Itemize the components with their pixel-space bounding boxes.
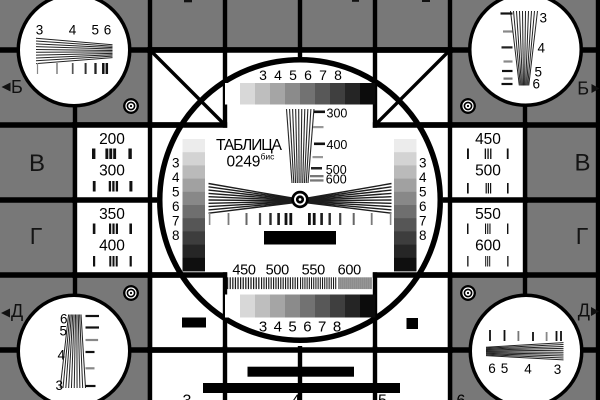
svg-text:4: 4 bbox=[524, 362, 532, 377]
svg-text:6: 6 bbox=[488, 361, 496, 376]
svg-text:3: 3 bbox=[554, 362, 562, 377]
svg-text:5: 5 bbox=[92, 23, 100, 38]
svg-text:4: 4 bbox=[419, 170, 427, 185]
svg-text:7: 7 bbox=[318, 319, 326, 336]
svg-text:400: 400 bbox=[99, 238, 125, 255]
svg-text:6: 6 bbox=[303, 319, 311, 336]
svg-text:600: 600 bbox=[326, 172, 347, 186]
svg-text:4: 4 bbox=[292, 393, 301, 400]
svg-text:6: 6 bbox=[533, 77, 541, 92]
svg-text:8: 8 bbox=[172, 228, 180, 243]
svg-text:5: 5 bbox=[172, 185, 180, 200]
svg-text:4: 4 bbox=[538, 41, 546, 56]
svg-text:3: 3 bbox=[172, 156, 180, 171]
svg-text:5: 5 bbox=[419, 185, 427, 200]
svg-text:3: 3 bbox=[259, 319, 267, 336]
svg-text:5: 5 bbox=[501, 361, 509, 376]
svg-text:5: 5 bbox=[59, 324, 67, 339]
svg-text:В: В bbox=[574, 150, 590, 177]
svg-text:400: 400 bbox=[327, 138, 348, 152]
svg-text:4: 4 bbox=[172, 170, 180, 185]
svg-text:600: 600 bbox=[338, 262, 362, 278]
svg-text:6: 6 bbox=[104, 23, 112, 38]
svg-text:7: 7 bbox=[319, 67, 327, 83]
svg-text:350: 350 bbox=[99, 206, 125, 223]
svg-text:В: В bbox=[29, 150, 45, 177]
svg-text:0249: 0249 bbox=[227, 154, 261, 171]
svg-text:6: 6 bbox=[457, 393, 466, 400]
svg-text:450: 450 bbox=[232, 262, 256, 278]
svg-text:3: 3 bbox=[540, 11, 548, 26]
svg-text:Г: Г bbox=[576, 223, 589, 249]
svg-text:3: 3 bbox=[259, 67, 267, 83]
svg-text:3: 3 bbox=[419, 156, 427, 171]
svg-text:600: 600 bbox=[475, 238, 501, 255]
svg-text:4: 4 bbox=[274, 319, 282, 336]
svg-text:Д: Д bbox=[578, 301, 590, 321]
svg-text:3: 3 bbox=[36, 23, 44, 38]
svg-text:Б: Б bbox=[11, 77, 23, 97]
svg-text:6: 6 bbox=[172, 199, 180, 214]
svg-text:5: 5 bbox=[288, 319, 296, 336]
svg-text:8: 8 bbox=[333, 319, 341, 336]
svg-text:5: 5 bbox=[289, 67, 297, 83]
svg-text:8: 8 bbox=[419, 228, 427, 243]
svg-text:бис: бис bbox=[261, 152, 276, 162]
svg-text:4: 4 bbox=[57, 348, 65, 363]
svg-text:6: 6 bbox=[304, 67, 312, 83]
svg-text:Д: Д bbox=[11, 301, 23, 321]
svg-text:550: 550 bbox=[475, 206, 501, 223]
svg-text:6: 6 bbox=[419, 199, 427, 214]
svg-text:4: 4 bbox=[69, 23, 77, 38]
svg-text:Г: Г bbox=[30, 223, 43, 249]
svg-text:5: 5 bbox=[378, 393, 387, 400]
svg-text:8: 8 bbox=[334, 67, 342, 83]
svg-text:550: 550 bbox=[302, 262, 326, 278]
svg-text:7: 7 bbox=[172, 214, 180, 229]
svg-text:3: 3 bbox=[183, 393, 192, 400]
svg-text:200: 200 bbox=[99, 131, 125, 148]
svg-text:Б: Б bbox=[577, 79, 589, 99]
svg-text:7: 7 bbox=[419, 214, 427, 229]
svg-text:500: 500 bbox=[475, 163, 501, 180]
svg-text:4: 4 bbox=[274, 67, 282, 83]
svg-text:300: 300 bbox=[327, 107, 348, 121]
svg-text:3: 3 bbox=[55, 378, 63, 393]
svg-text:450: 450 bbox=[475, 131, 501, 148]
svg-text:500: 500 bbox=[266, 262, 290, 278]
svg-text:300: 300 bbox=[99, 163, 125, 180]
